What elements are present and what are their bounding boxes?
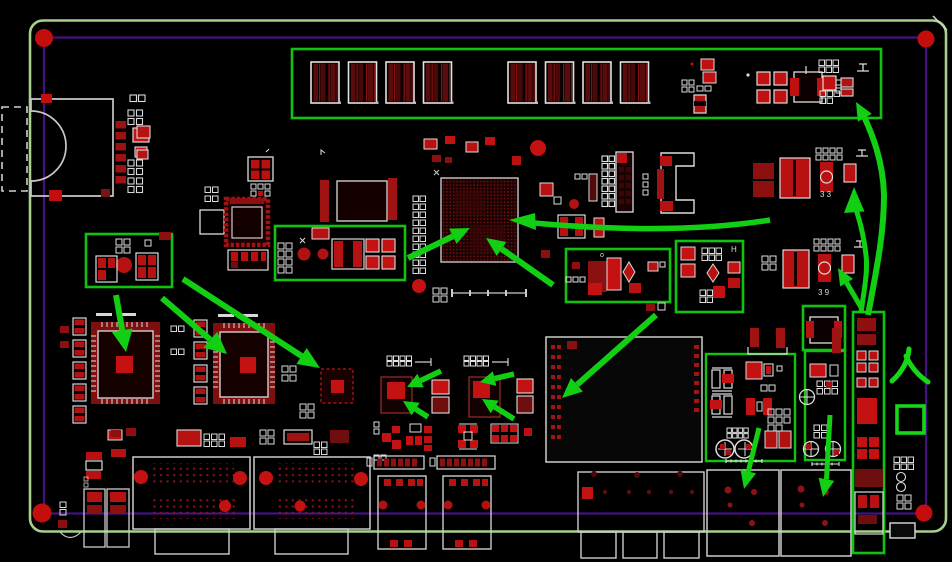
svg-text:H: H (731, 245, 737, 254)
svg-text:o: o (600, 252, 604, 259)
svg-text:3 3: 3 3 (820, 190, 832, 199)
svg-text:3 9: 3 9 (818, 288, 830, 297)
